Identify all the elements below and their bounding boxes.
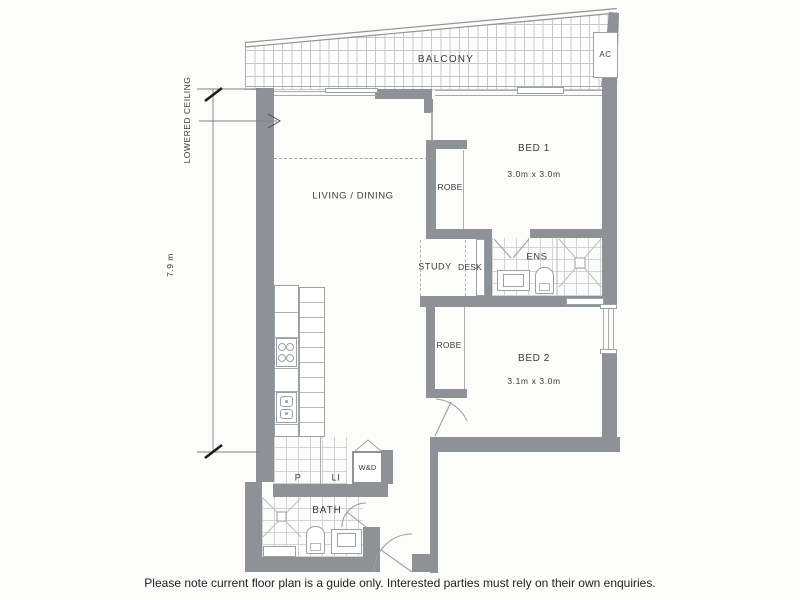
living-dining-label: LIVING / DINING <box>312 191 393 201</box>
ac-label: AC <box>599 51 611 59</box>
disclaimer-text: Please note current floor plan is a guid… <box>0 576 800 590</box>
plan-linework <box>0 0 800 600</box>
linen-label: LI <box>332 474 341 483</box>
entry-door-arc <box>374 534 412 572</box>
bed1-size-label: 3.0m x 3.0m <box>507 170 560 179</box>
study-label: STUDY <box>418 263 452 272</box>
ac-unit: AC <box>593 32 618 78</box>
shower-marks <box>263 238 601 537</box>
desk-label: DESK <box>458 263 482 272</box>
ens-label: ENS <box>526 252 547 262</box>
bath-door-leaf <box>347 512 366 527</box>
bed2-door-arc <box>436 399 467 421</box>
bath-shower-drain <box>277 512 286 521</box>
bed1-label: BED 1 <box>518 144 550 154</box>
robe2-label: ROBE <box>437 341 462 350</box>
height-dimension-label: 7.9 m <box>166 253 175 277</box>
pantry-label: P <box>295 474 302 483</box>
door-swings <box>342 239 529 572</box>
bath-door-arc <box>342 503 366 527</box>
ens-shower-drain <box>575 258 585 268</box>
robe1-label: ROBE <box>438 183 463 192</box>
bath-label: BATH <box>312 506 342 516</box>
entry-door-leaf <box>381 550 412 572</box>
dimension-annotation <box>197 89 277 452</box>
bed1-door-leaf <box>494 239 511 258</box>
bed2-door-leaf <box>435 402 451 436</box>
wd-door-mark <box>355 440 381 451</box>
lowered-ceiling-label: LOWERED CEILING <box>183 77 192 164</box>
balcony-label: BALCONY <box>418 55 474 65</box>
bed2-size-label: 3.1m x 3.0m <box>507 377 560 386</box>
floor-plan: AC <box>0 0 800 600</box>
balcony-balustrade <box>245 9 617 48</box>
dimension-tick-marks <box>205 88 222 458</box>
bed2-label: BED 2 <box>518 354 550 364</box>
